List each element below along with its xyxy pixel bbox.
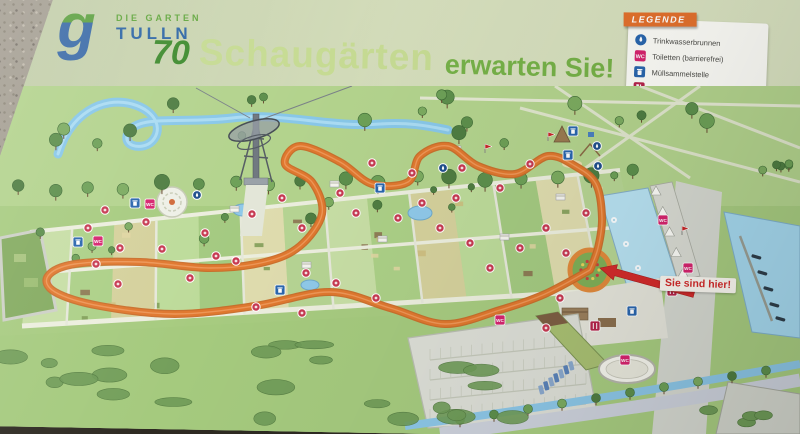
garden-pavilion [230,206,239,212]
legend-item: Trinkwasserbrunnen [635,34,761,51]
garden-pavilion [302,262,311,268]
garden-number-marker [336,189,344,197]
garden-number-marker [252,303,260,311]
toilets-marker-icon: WC [683,263,693,273]
svg-text:WC: WC [496,318,504,323]
fountain-marker-icon [594,162,603,171]
garden-number-marker [302,269,310,277]
map-illustration: WCWCWCWCWCWC [0,86,800,434]
svg-text:WC: WC [659,218,667,223]
svg-text:WC: WC [621,358,629,363]
garden-number-marker [496,184,504,192]
waste-marker-icon [130,198,140,208]
title-rest: erwarten Sie! [444,50,614,84]
garden-number-marker [352,209,360,217]
garden-pavilion [556,194,565,200]
food-drink-marker-icon [590,321,600,331]
garden-number-marker [408,169,416,177]
drinking-fountain-icon [635,34,647,46]
svg-text:WC: WC [636,54,645,60]
logo-line1: DIE GARTEN [116,13,202,23]
garden-number-marker [436,224,444,232]
svg-text:WC: WC [146,202,154,207]
sign-title: 70Schaugärtenerwarten Sie! [152,30,615,83]
garden-number-marker [372,294,380,302]
garden-number-marker [452,194,460,202]
fountain-marker-icon [439,164,448,173]
title-number: 70 [152,33,191,72]
garden-number-marker [92,260,100,268]
fountain-marker-icon [593,142,602,151]
garden-pavilion [378,236,387,242]
map-sign-board: g DIE GARTEN TULLN 70Schaugärtenerwarten… [0,0,800,434]
garden-pavilion [500,234,509,240]
waste-marker-icon [275,285,285,295]
garden-number-marker [526,160,534,168]
entrance-kiosk [598,318,616,327]
legend-item-label: Müllsammelstelle [651,68,709,79]
garden-number-marker [232,257,240,265]
garden-number-marker [458,164,466,172]
garden-number-marker [114,280,122,288]
garden-number-marker [116,244,124,252]
fountain-marker-icon [193,191,202,200]
waste-marker-icon [627,306,637,316]
garden-number-marker [542,324,550,332]
garden-number-marker [542,224,550,232]
title-highlight: Schaugärten [198,32,434,79]
legend-heading: LEGENDE [624,12,697,26]
garden-number-marker [418,199,426,207]
waste-marker-icon [375,183,385,193]
you-are-here-label: Sie sind hier! [660,276,736,294]
garden-number-marker [158,245,166,253]
pond [301,280,319,290]
toilets-marker-icon: WC [145,199,155,209]
legend-item-label: Trinkwasserbrunnen [653,36,721,48]
toilets-marker-icon: WC [620,355,630,365]
waste-marker-icon [563,150,573,160]
legend-item: WC Toiletten (barrierefrei) [634,50,760,67]
svg-text:g: g [56,0,95,62]
toilets-marker-icon: WC [495,315,505,325]
garden-number-marker [486,264,494,272]
logo-g-icon: g [54,0,112,76]
legend-item-label: Toiletten (barrierefrei) [652,52,724,64]
toilets-marker-icon: WC [93,236,103,246]
photo-of-garden-map-sign: g DIE GARTEN TULLN 70Schaugärtenerwarten… [0,0,800,434]
garden-number-marker [248,210,256,218]
garden-number-marker [394,214,402,222]
garden-number-marker [201,229,209,237]
waste-bin-icon [633,66,645,78]
map-area: WCWCWCWCWCWC [0,86,800,434]
garden-number-marker [582,209,590,217]
garden-number-marker [212,252,220,260]
garden-number-marker [298,309,306,317]
legend-item: Müllsammelstelle [633,66,759,83]
garden-number-marker [298,224,306,232]
garden-number-marker [278,194,286,202]
wc-icon: WC [634,50,646,62]
garden-number-marker [142,218,150,226]
toilets-marker-icon: WC [658,215,668,225]
waste-marker-icon [568,126,578,136]
waste-marker-icon [73,237,83,247]
garden-number-marker [101,206,109,214]
garden-number-marker [368,159,376,167]
pond [408,206,432,220]
garden-number-marker [332,279,340,287]
garden-number-marker [562,249,570,257]
garden-number-marker [516,244,524,252]
garden-number-marker [556,294,564,302]
garden-pavilion [330,181,339,187]
garden-number-marker [466,239,474,247]
svg-text:WC: WC [94,239,102,244]
svg-text:WC: WC [684,266,692,271]
garden-number-marker [84,224,92,232]
garden-number-marker [186,274,194,282]
